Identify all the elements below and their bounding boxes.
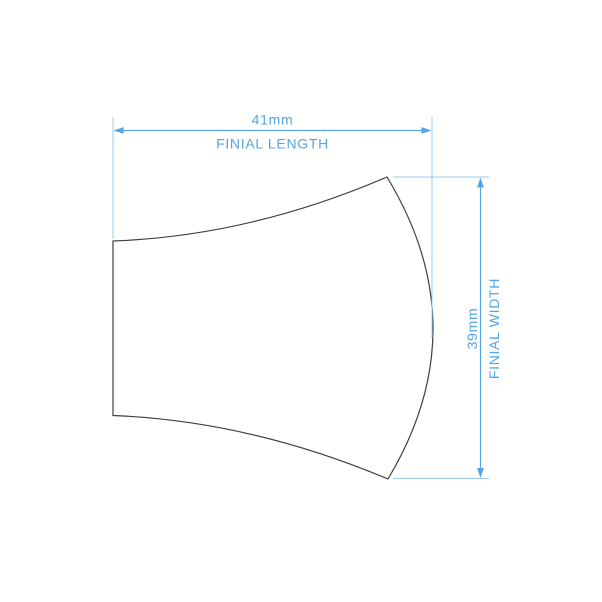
finial-dimension-diagram: 41mm FINIAL LENGTH 39mm FINIAL WIDTH [0,0,602,602]
diagram-canvas: 41mm FINIAL LENGTH 39mm FINIAL WIDTH [0,0,602,602]
length-value: 41mm [252,112,294,128]
width-value: 39mm [464,308,480,350]
arrowhead-left-icon [114,127,124,134]
width-label: FINIAL WIDTH [486,278,502,379]
finial-profile-outline [113,177,433,479]
length-label: FINIAL LENGTH [216,136,329,152]
arrowhead-right-icon [422,127,432,134]
arrowhead-up-icon [477,178,484,188]
width-dimension: 39mm FINIAL WIDTH [393,177,502,479]
arrowhead-down-icon [477,468,484,478]
length-dimension: 41mm FINIAL LENGTH [113,112,432,339]
